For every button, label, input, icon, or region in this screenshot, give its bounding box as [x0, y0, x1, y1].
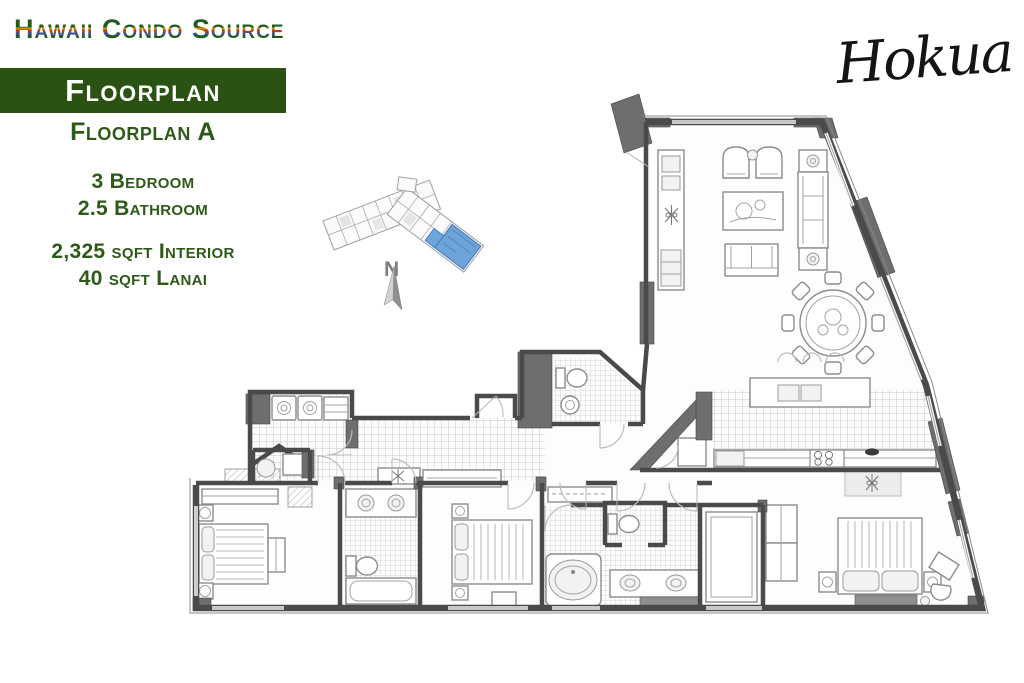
toilet-tank — [608, 514, 617, 534]
pillow — [202, 527, 214, 552]
side-table — [748, 150, 758, 160]
refrigerator — [716, 451, 744, 466]
nightstand — [819, 572, 836, 592]
laundry-counter — [324, 397, 348, 420]
water-heater — [257, 459, 275, 477]
bathtub — [346, 578, 416, 604]
floorplan-graphic: N — [0, 0, 1024, 683]
pantry — [678, 438, 706, 466]
toilet — [619, 516, 639, 533]
pillow — [455, 554, 468, 580]
pillow — [882, 571, 918, 591]
sink-fixture — [865, 449, 879, 456]
armchair — [756, 147, 782, 178]
stove — [810, 450, 844, 467]
building-key-plan — [323, 177, 484, 272]
walk-in-closet — [706, 512, 757, 602]
coffee-table — [723, 192, 783, 230]
desk-chair — [931, 584, 951, 600]
pillow — [455, 524, 468, 550]
dryer — [298, 396, 322, 420]
chair — [492, 592, 516, 606]
washer — [272, 396, 296, 420]
vanity — [346, 489, 416, 517]
pillow — [843, 571, 879, 591]
armchair — [723, 147, 749, 178]
toilet-tank — [346, 556, 356, 576]
compass-icon: N — [384, 258, 402, 310]
sink — [561, 396, 579, 414]
toilet-tank — [556, 368, 565, 388]
unit-floorplan — [190, 94, 988, 613]
pillow — [202, 555, 214, 580]
living-room-furniture — [658, 147, 828, 290]
toilet — [357, 557, 378, 575]
toilet — [567, 369, 587, 387]
closet — [288, 487, 312, 507]
